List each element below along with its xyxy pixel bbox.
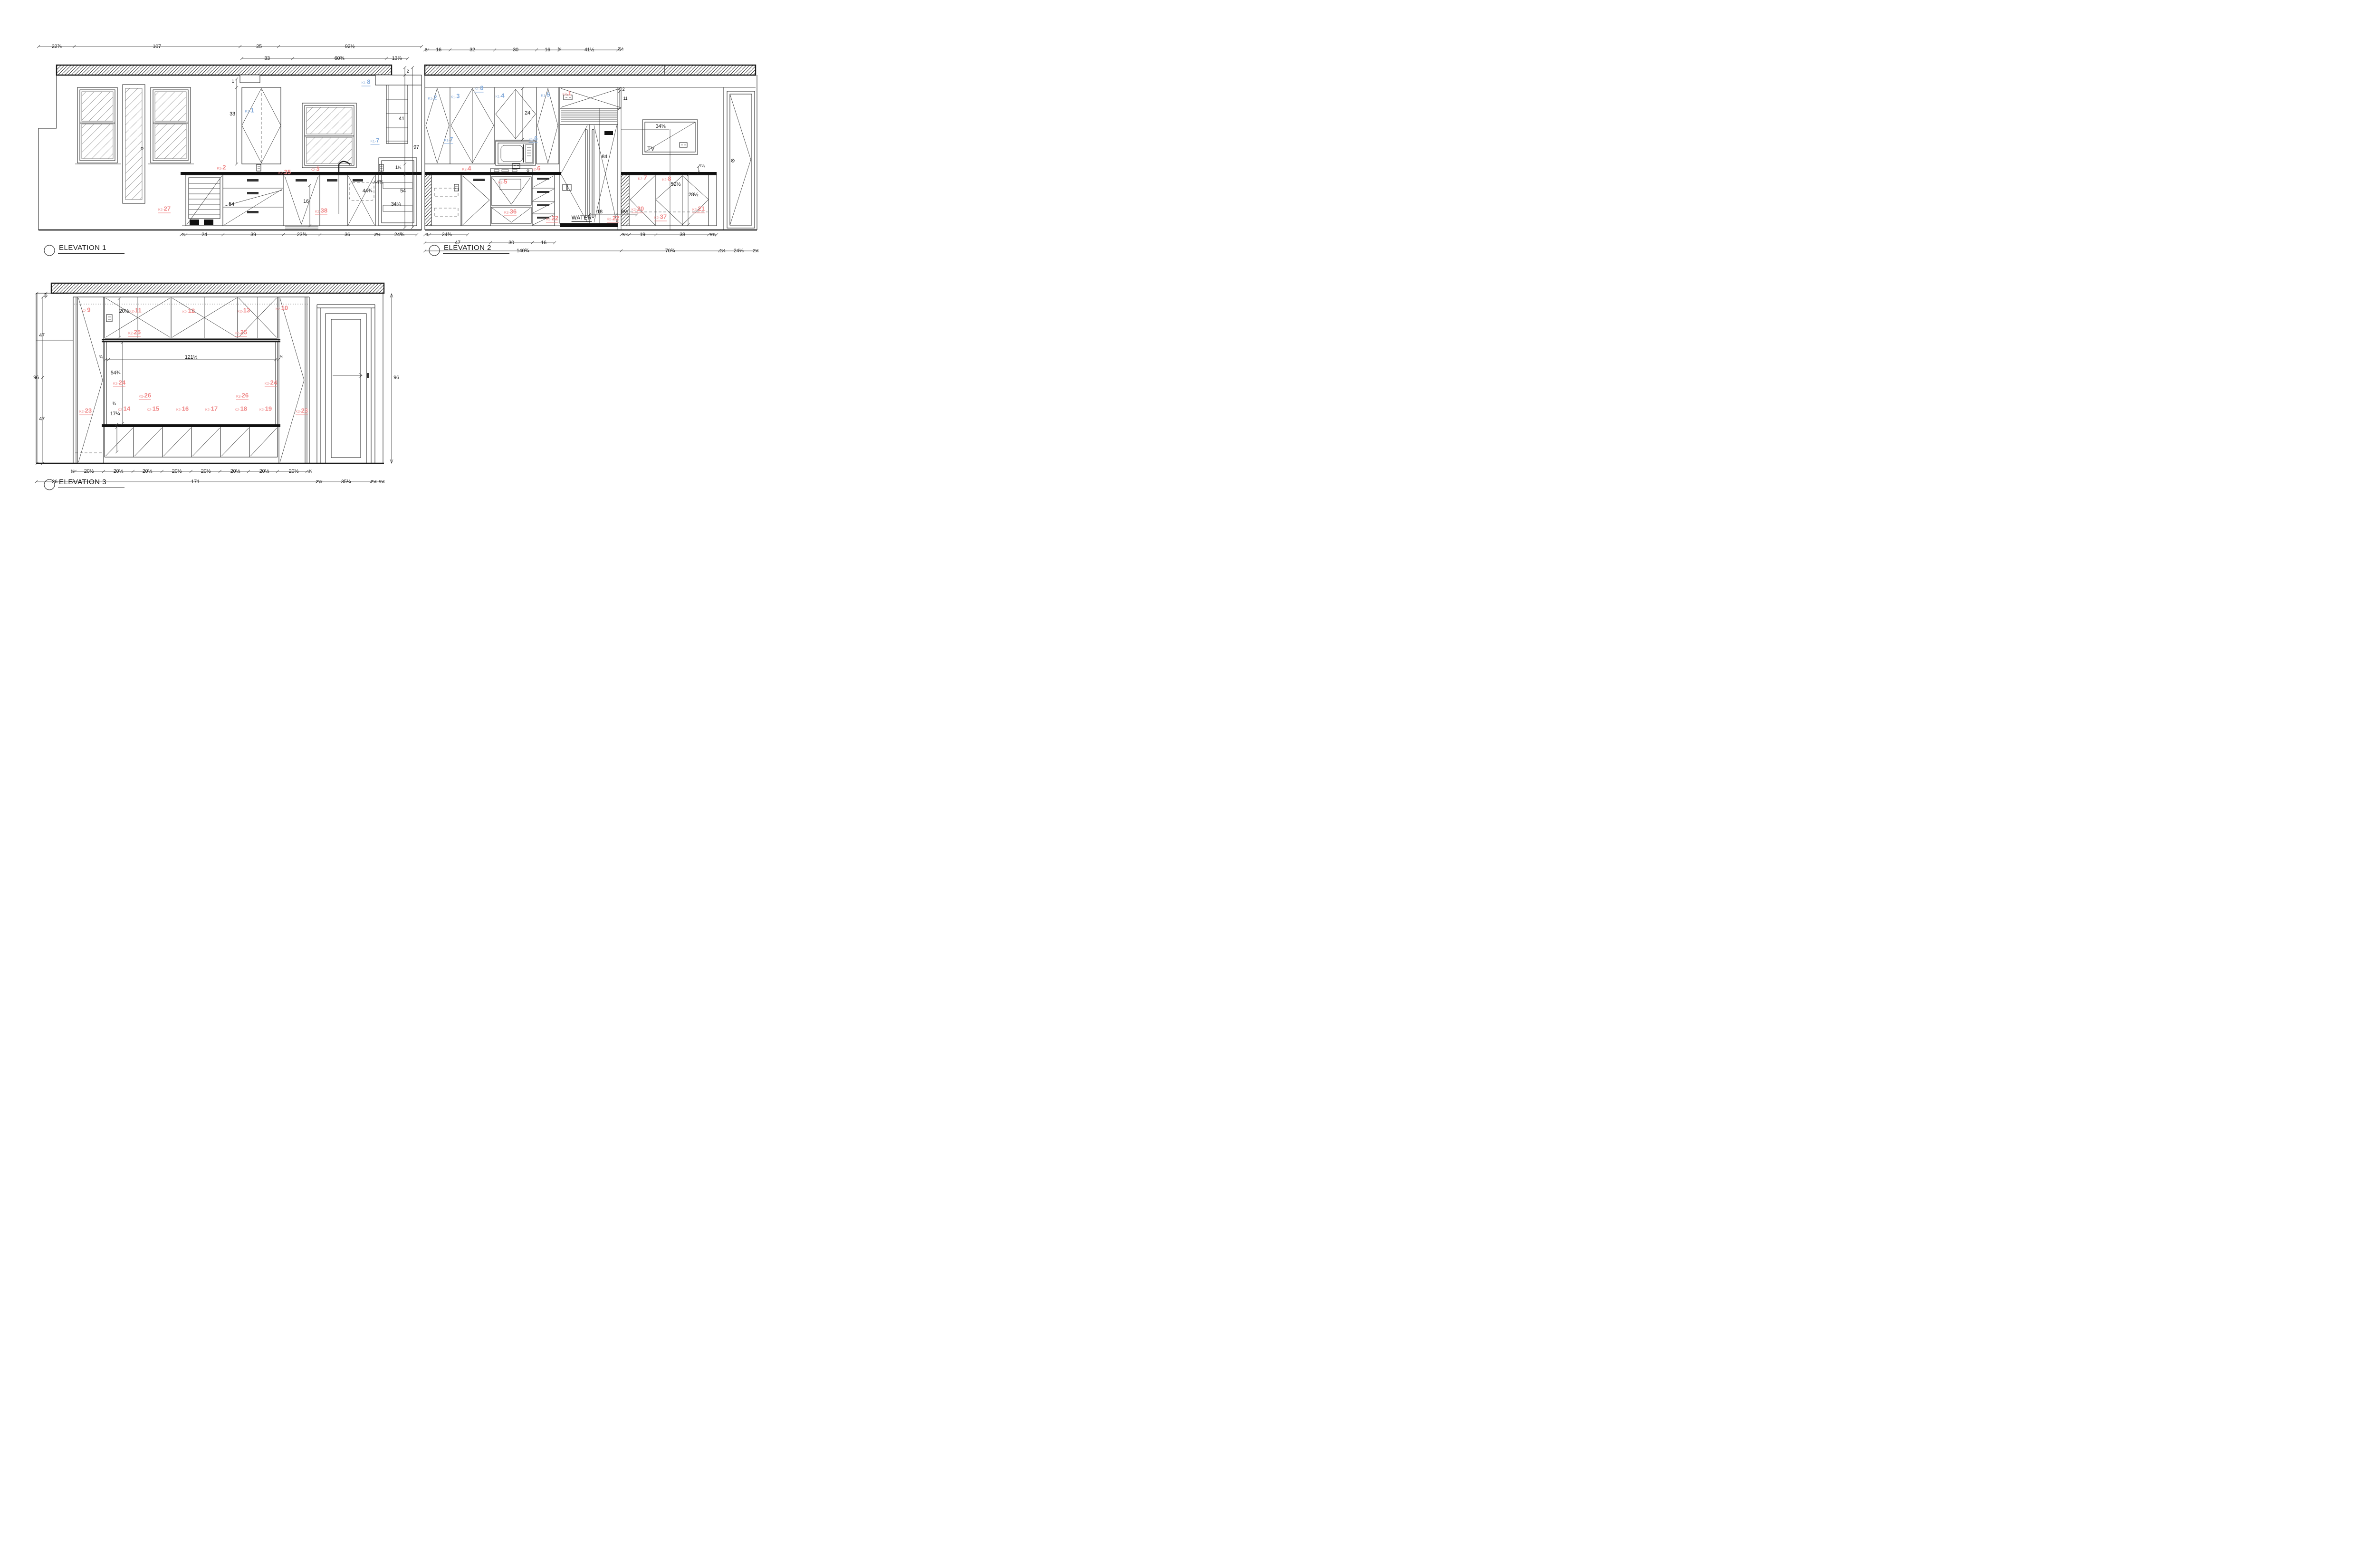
cad-linework [0, 0, 808, 523]
elevation-3-linework [35, 283, 393, 483]
elevation-1-linework [37, 45, 423, 236]
drawing-sheet: 22⅞1072592½3360⅜13⅞133241971¼5434¾541644… [0, 0, 808, 523]
elevation-2-linework [423, 48, 758, 252]
